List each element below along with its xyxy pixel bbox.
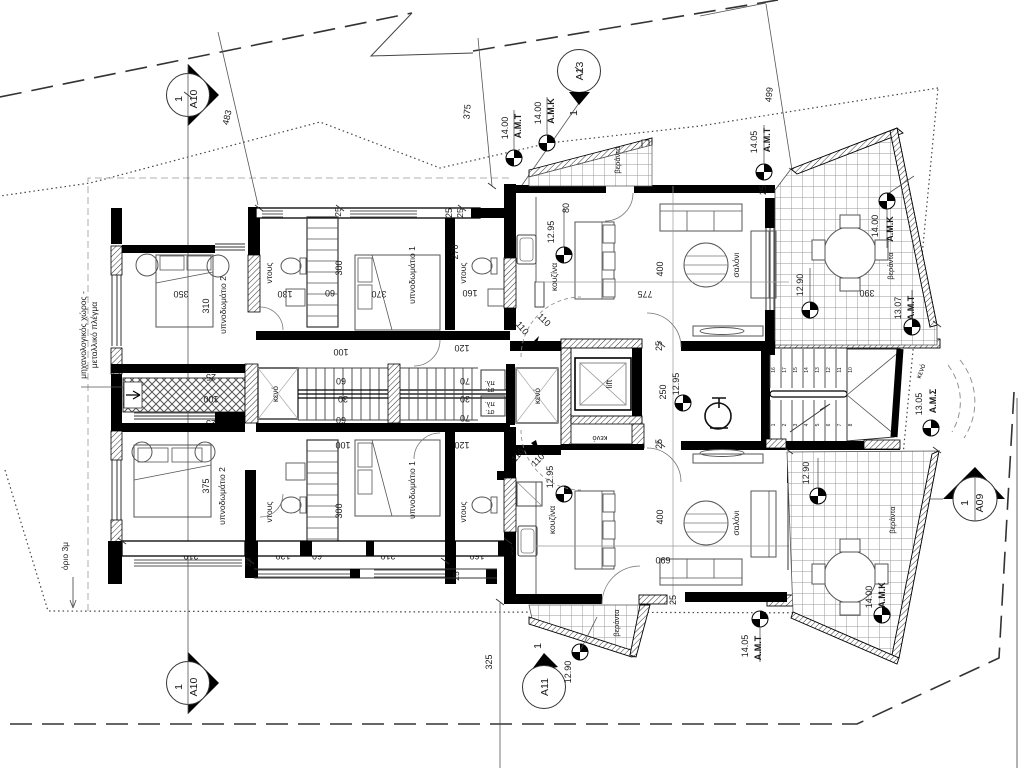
svg-text:13.05: 13.05 — [914, 393, 924, 416]
svg-text:πλ.: πλ. — [485, 379, 495, 386]
svg-text:A.M.T: A.M.T — [513, 113, 523, 138]
svg-text:25: 25 — [668, 595, 678, 605]
svg-text:κενό: κενό — [271, 385, 280, 402]
svg-text:σαλόνι: σαλόνι — [731, 252, 741, 277]
svg-text:ντους: ντους — [458, 263, 468, 284]
svg-text:12.95: 12.95 — [545, 466, 555, 489]
svg-text:100: 100 — [203, 394, 218, 404]
svg-text:A09: A09 — [974, 494, 986, 513]
svg-text:A10: A10 — [188, 90, 200, 109]
svg-text:A.M.T: A.M.T — [762, 127, 772, 152]
svg-text:270: 270 — [450, 244, 460, 259]
svg-text:πλ.: πλ. — [485, 400, 495, 407]
svg-text:25: 25 — [758, 185, 768, 195]
svg-text:13.07: 13.07 — [893, 297, 903, 320]
svg-text:στ.: στ. — [485, 408, 494, 415]
svg-text:12: 12 — [826, 367, 832, 373]
svg-text:1: 1 — [959, 500, 971, 506]
svg-text:400: 400 — [655, 261, 665, 276]
svg-text:A.M.K: A.M.K — [877, 582, 887, 608]
svg-text:1: 1 — [771, 423, 777, 426]
svg-text:16: 16 — [771, 367, 777, 373]
svg-text:βεράντα: βεράντα — [612, 609, 621, 637]
svg-text:1: 1 — [173, 684, 185, 690]
svg-text:lift: lift — [604, 379, 614, 388]
svg-text:499: 499 — [763, 87, 775, 103]
svg-text:390: 390 — [859, 288, 874, 298]
svg-text:υπνοδωμάτιο 2: υπνοδωμάτιο 2 — [217, 467, 227, 525]
svg-text:120: 120 — [454, 343, 469, 353]
svg-text:300: 300 — [334, 260, 344, 275]
svg-text:A.M.T: A.M.T — [906, 295, 916, 320]
svg-text:120: 120 — [454, 440, 469, 450]
svg-text:A11: A11 — [539, 678, 551, 696]
svg-text:υπνοδωμάτιο 1: υπνοδωμάτιο 1 — [407, 461, 417, 519]
svg-text:375: 375 — [201, 478, 211, 493]
svg-text:370: 370 — [371, 289, 386, 299]
svg-text:μηχανολογικός χώρος -: μηχανολογικός χώρος - — [78, 291, 88, 379]
svg-text:2: 2 — [782, 423, 788, 426]
svg-text:25: 25 — [451, 571, 461, 581]
svg-text:14.05: 14.05 — [740, 635, 750, 658]
svg-text:12.90: 12.90 — [801, 462, 811, 485]
svg-text:14.00: 14.00 — [533, 102, 543, 125]
svg-text:σαλόνι: σαλόνι — [731, 510, 741, 535]
svg-text:1: 1 — [173, 96, 185, 102]
svg-text:14.00: 14.00 — [870, 215, 880, 238]
svg-text:13: 13 — [815, 367, 821, 373]
svg-text:12.95: 12.95 — [546, 221, 556, 244]
svg-text:1: 1 — [532, 643, 544, 649]
svg-text:375: 375 — [461, 104, 472, 120]
svg-text:14.00: 14.00 — [864, 586, 874, 609]
svg-text:βεράντα: βεράντα — [613, 146, 622, 174]
svg-text:14.05: 14.05 — [749, 131, 759, 154]
svg-text:14: 14 — [804, 367, 810, 373]
svg-text:A.M.K: A.M.K — [885, 216, 895, 242]
svg-text:160: 160 — [462, 288, 477, 298]
svg-text:κενό: κενό — [533, 387, 542, 404]
svg-text:60: 60 — [325, 288, 335, 298]
svg-text:6: 6 — [826, 423, 832, 426]
svg-text:12.90: 12.90 — [563, 661, 573, 684]
svg-text:κουζίνα: κουζίνα — [547, 506, 557, 534]
svg-text:ντους: ντους — [264, 263, 274, 284]
svg-text:12.90: 12.90 — [795, 274, 805, 297]
svg-text:300: 300 — [334, 503, 344, 518]
svg-text:κουζίνα: κουζίνα — [549, 263, 559, 291]
svg-text:κενό: κενό — [592, 434, 607, 443]
svg-text:130: 130 — [277, 289, 292, 299]
svg-text:690: 690 — [655, 555, 670, 565]
svg-text:A.M.T: A.M.T — [753, 635, 763, 660]
svg-text:30: 30 — [338, 394, 348, 404]
svg-text:400: 400 — [655, 509, 665, 524]
svg-text:325: 325 — [484, 654, 494, 669]
svg-text:15: 15 — [793, 367, 799, 373]
svg-text:4: 4 — [804, 423, 810, 426]
svg-text:A.M.Σ: A.M.Σ — [928, 388, 938, 413]
svg-text:ντους: ντους — [264, 502, 274, 523]
svg-text:70: 70 — [460, 376, 470, 386]
svg-text:1: 1 — [568, 110, 580, 116]
svg-text:25: 25 — [444, 208, 454, 218]
svg-text:μεταλλικό πλέγμα: μεταλλικό πλέγμα — [89, 302, 99, 369]
svg-text:60: 60 — [336, 376, 346, 386]
svg-text:30: 30 — [460, 394, 470, 404]
svg-text:8: 8 — [848, 423, 854, 426]
svg-text:12.95: 12.95 — [671, 373, 681, 396]
svg-text:όριο 3μ: όριο 3μ — [60, 542, 70, 570]
svg-text:ντους: ντους — [458, 502, 468, 523]
svg-text:250: 250 — [658, 384, 668, 399]
svg-text:25: 25 — [333, 207, 343, 217]
svg-text:25: 25 — [206, 372, 216, 382]
svg-text:14.00: 14.00 — [500, 117, 510, 140]
svg-text:775: 775 — [637, 289, 652, 299]
svg-text:A10: A10 — [188, 678, 200, 697]
svg-text:στ.: στ. — [485, 386, 494, 393]
svg-text:11: 11 — [837, 367, 843, 372]
svg-text:υπνοδωμάτιο 1: υπνοδωμάτιο 1 — [407, 246, 417, 304]
svg-text:350: 350 — [173, 289, 188, 299]
svg-text:5: 5 — [815, 423, 821, 426]
svg-text:βεράντα: βεράντα — [886, 252, 895, 280]
svg-text:100: 100 — [333, 347, 348, 357]
svg-text:υπνοδωμάτιο 2: υπνοδωμάτιο 2 — [218, 276, 228, 334]
svg-text:βεράντα: βεράντα — [888, 506, 897, 534]
svg-text:25: 25 — [654, 439, 664, 449]
svg-text:7: 7 — [837, 423, 843, 426]
svg-text:70: 70 — [460, 413, 470, 423]
svg-text:17: 17 — [782, 367, 788, 373]
svg-text:A.M.K: A.M.K — [546, 98, 556, 124]
svg-text:10: 10 — [848, 367, 854, 373]
svg-text:310: 310 — [201, 298, 211, 313]
svg-text:80: 80 — [561, 203, 571, 213]
